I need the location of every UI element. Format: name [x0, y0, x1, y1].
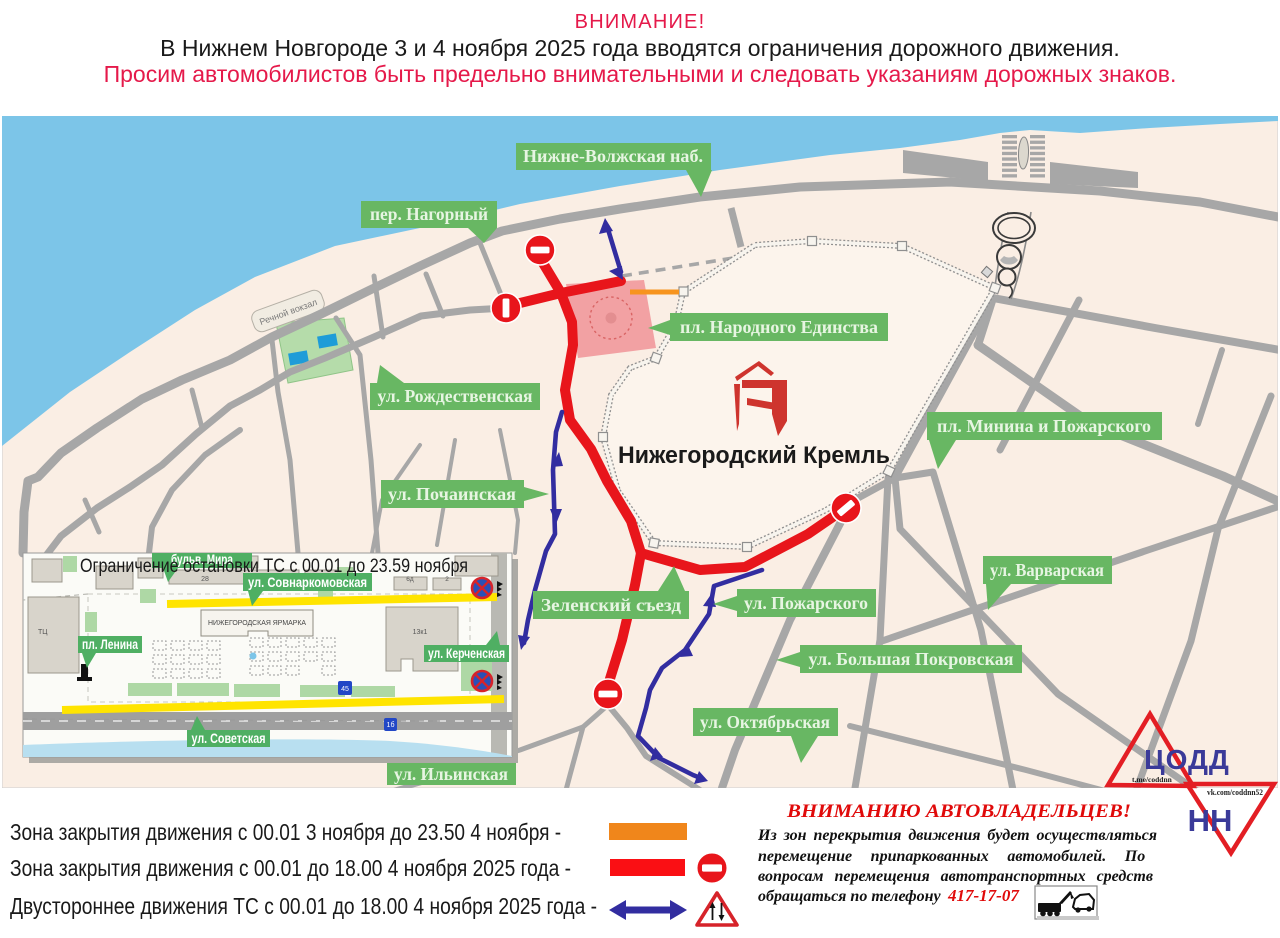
svg-text:перемещение припаркованных авт: перемещение припаркованных автомобилей. … — [758, 848, 1145, 865]
svg-text:ул. Почаинская: ул. Почаинская — [388, 484, 516, 504]
svg-text:ЦОДД: ЦОДД — [1144, 744, 1230, 775]
svg-text:Нижегородский Кремль: Нижегородский Кремль — [618, 442, 890, 469]
svg-text:45: 45 — [341, 686, 349, 693]
svg-text:НН: НН — [1188, 803, 1233, 838]
svg-text:417-17-07: 417-17-07 — [947, 886, 1020, 905]
svg-text:28: 28 — [201, 576, 209, 583]
svg-text:ул. Варварская: ул. Варварская — [990, 560, 1104, 580]
svg-text:пер. Нагорный: пер. Нагорный — [370, 204, 488, 224]
svg-text:ул. Керченская: ул. Керченская — [428, 646, 505, 661]
svg-text:ул. Большая Покровская: ул. Большая Покровская — [809, 649, 1014, 669]
svg-text:t.me/coddnn: t.me/coddnn — [1132, 775, 1173, 784]
svg-text:vk.com/coddnn52: vk.com/coddnn52 — [1207, 787, 1263, 797]
svg-text:вопросам перемещения автотранс: вопросам перемещения автотранспортных ср… — [758, 868, 1153, 885]
svg-text:обращаться по телефону: обращаться по телефону — [758, 888, 942, 905]
svg-text:ул. Октябрьская: ул. Октябрьская — [700, 712, 830, 732]
svg-text:13к1: 13к1 — [413, 629, 428, 636]
svg-text:2: 2 — [445, 576, 449, 583]
svg-text:Нижне-Волжская наб.: Нижне-Волжская наб. — [523, 146, 703, 166]
svg-text:пл. Ленина: пл. Ленина — [82, 637, 138, 652]
svg-text:ул. Ильинская: ул. Ильинская — [394, 764, 508, 784]
svg-text:НИЖЕГОРОДСКАЯ ЯРМАРКА: НИЖЕГОРОДСКАЯ ЯРМАРКА — [208, 618, 306, 627]
svg-text:ТЦ: ТЦ — [38, 629, 48, 636]
svg-text:ул. Рождественская: ул. Рождественская — [378, 386, 533, 406]
svg-text:ул. Советская: ул. Советская — [192, 731, 266, 746]
svg-text:пл. Народного Единства: пл. Народного Единства — [680, 317, 878, 337]
svg-text:пл. Минина и Пожарского: пл. Минина и Пожарского — [937, 416, 1151, 436]
svg-text:Ограничение остановки ТС с 00.: Ограничение остановки ТС с 00.01 до 23.5… — [80, 556, 468, 577]
svg-text:ул. Пожарского: ул. Пожарского — [744, 593, 868, 613]
svg-text:ВНИМАНИЮ АВТОВЛАДЕЛЬЦЕВ!: ВНИМАНИЮ АВТОВЛАДЕЛЬЦЕВ! — [786, 801, 1131, 822]
svg-text:1б: 1б — [387, 721, 395, 729]
svg-text:Зеленский съезд: Зеленский съезд — [541, 595, 681, 615]
svg-text:Из зон перекрытия движения буд: Из зон перекрытия движения будет осущест… — [757, 827, 1157, 844]
svg-text:ул. Совнаркомовская: ул. Совнаркомовская — [248, 575, 367, 590]
svg-text:6д: 6д — [406, 576, 414, 583]
